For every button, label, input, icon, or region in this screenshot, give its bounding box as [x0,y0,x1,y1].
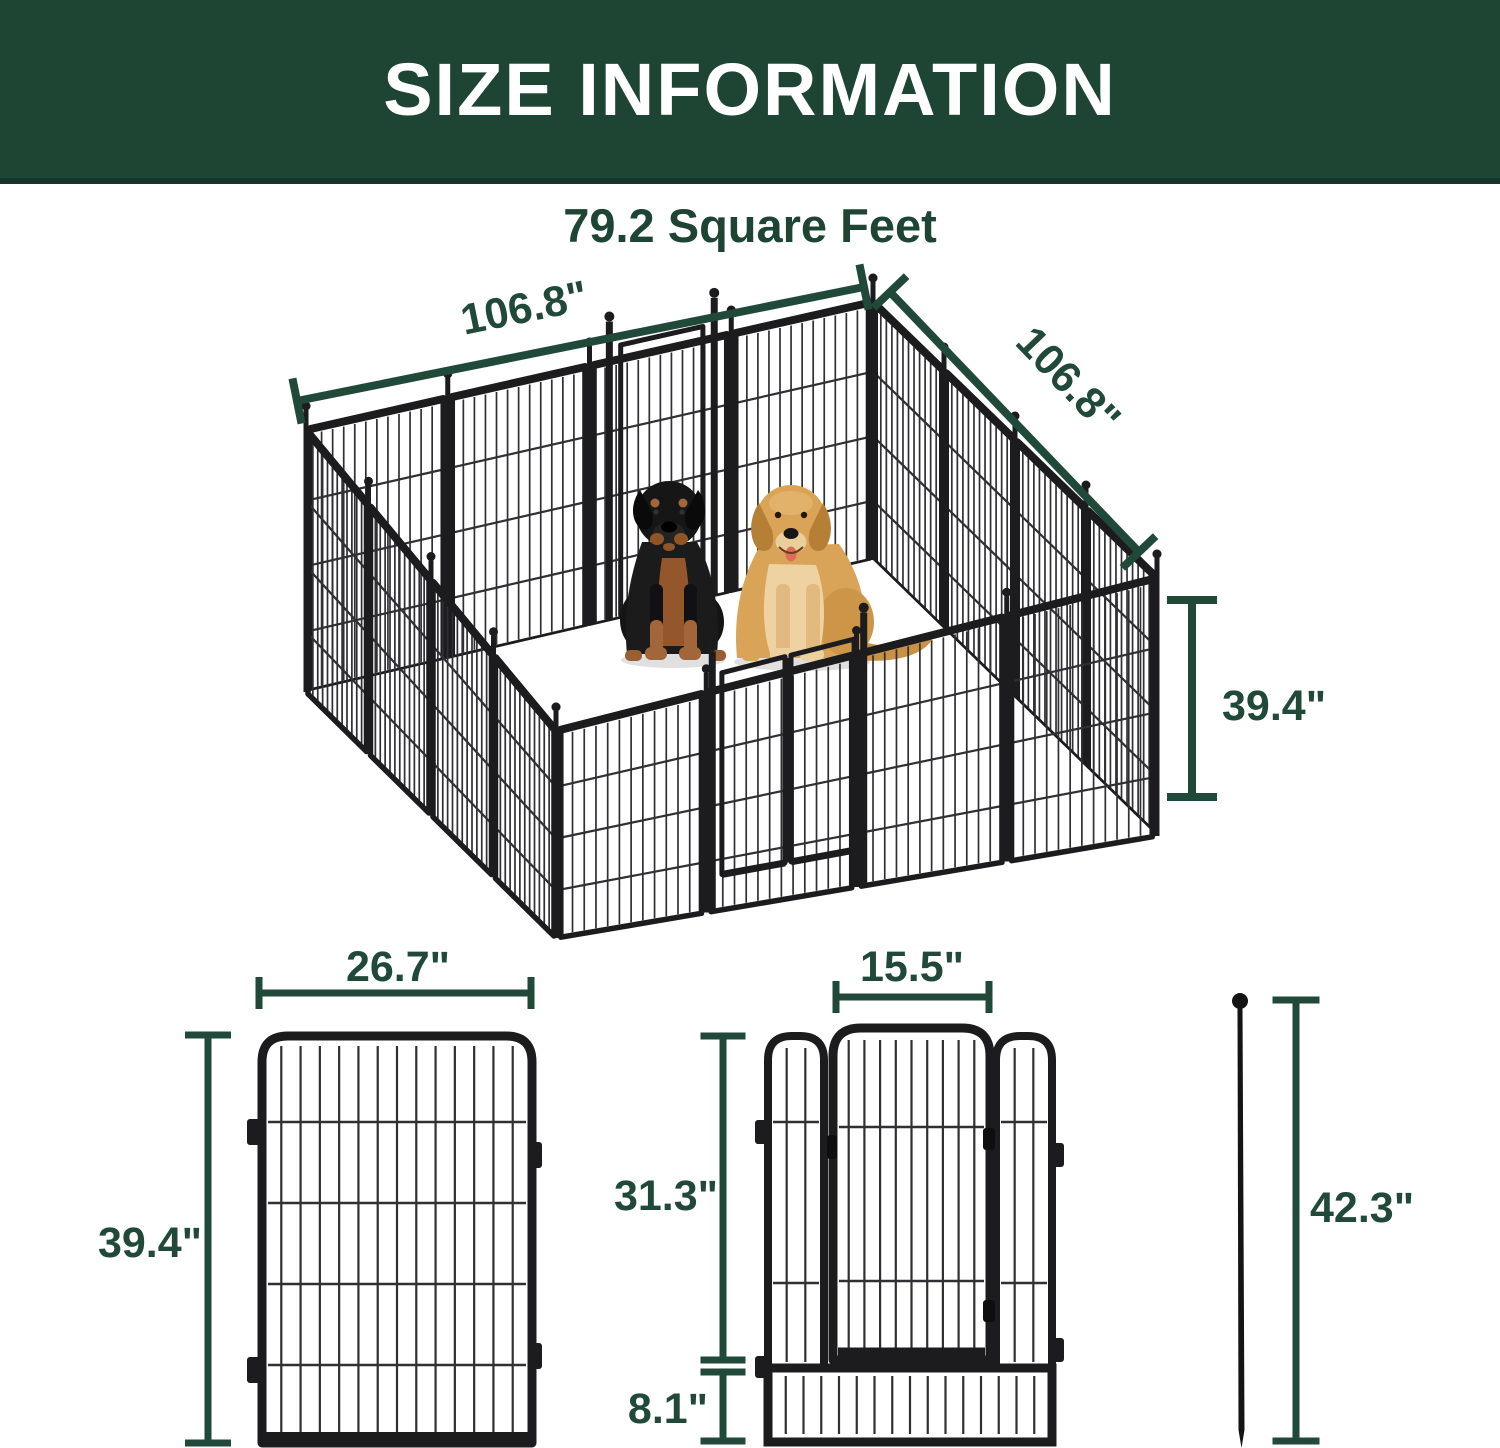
diagram-canvas: 106.8" 106.8" 39.4" 26.7" 39.4" 15.5" 31… [0,0,1500,1448]
pen-height-label: 39.4" [1222,682,1326,730]
pen-side-a-label: 106.8" [457,272,592,345]
pen-side-b-label: 106.8" [1006,318,1129,444]
panel-width-label: 26.7" [346,943,450,991]
gate-panel-diagram [701,981,1065,1442]
gate-door-width-label: 15.5" [860,943,964,991]
size-information-page: SIZE INFORMATION 79.2 Square Feet 106.8"… [0,0,1500,1448]
panel-height-label: 39.4" [98,1219,202,1267]
gate-bottom-height-label: 8.1" [628,1385,708,1433]
ground-stake-illustration [1232,993,1320,1448]
fence-panel-diagram [185,977,542,1443]
stake-length-label: 42.3" [1310,1184,1414,1232]
rottweiler-illustration [620,481,726,668]
gate-upper-height-label: 31.3" [614,1172,718,1220]
